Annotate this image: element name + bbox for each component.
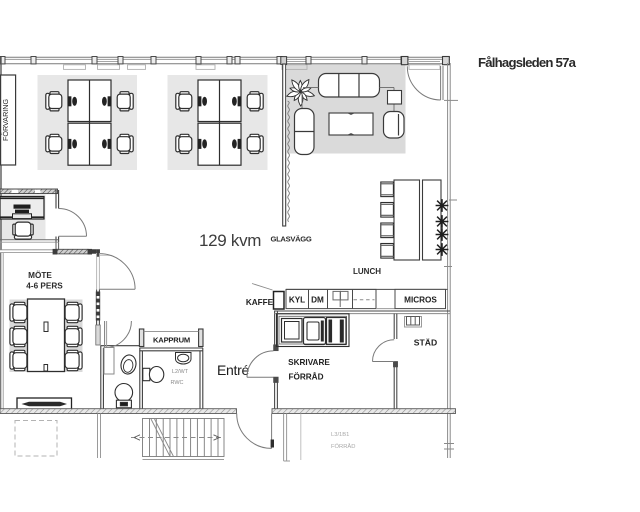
svg-text:Entré: Entré bbox=[217, 362, 249, 378]
svg-text:KAPPRUM: KAPPRUM bbox=[153, 336, 190, 345]
svg-text:FÖRRÅD: FÖRRÅD bbox=[288, 372, 323, 382]
svg-text:GLASVÄGG: GLASVÄGG bbox=[270, 235, 311, 244]
svg-text:FÖRVARING: FÖRVARING bbox=[1, 99, 10, 141]
svg-text:FÖRRÅD: FÖRRÅD bbox=[331, 443, 355, 450]
svg-text:129 kvm: 129 kvm bbox=[199, 231, 261, 250]
svg-text:MÖTE: MÖTE bbox=[28, 270, 52, 280]
svg-text:L2/WT: L2/WT bbox=[172, 369, 189, 375]
svg-text:L3/1B1: L3/1B1 bbox=[331, 432, 349, 438]
svg-text:RWC: RWC bbox=[170, 380, 183, 386]
svg-text:KAFFE: KAFFE bbox=[246, 298, 274, 307]
svg-text:SKRIVARE: SKRIVARE bbox=[288, 358, 330, 367]
svg-text:LUNCH: LUNCH bbox=[353, 267, 381, 276]
svg-text:DM: DM bbox=[311, 296, 324, 305]
svg-text:STÄD: STÄD bbox=[414, 338, 437, 348]
svg-text:4-6 PERS: 4-6 PERS bbox=[26, 282, 63, 291]
svg-text:KYL: KYL bbox=[289, 296, 305, 305]
svg-text:Fålhagsleden 57a: Fålhagsleden 57a bbox=[478, 55, 577, 70]
svg-text:MICROS: MICROS bbox=[404, 296, 437, 305]
